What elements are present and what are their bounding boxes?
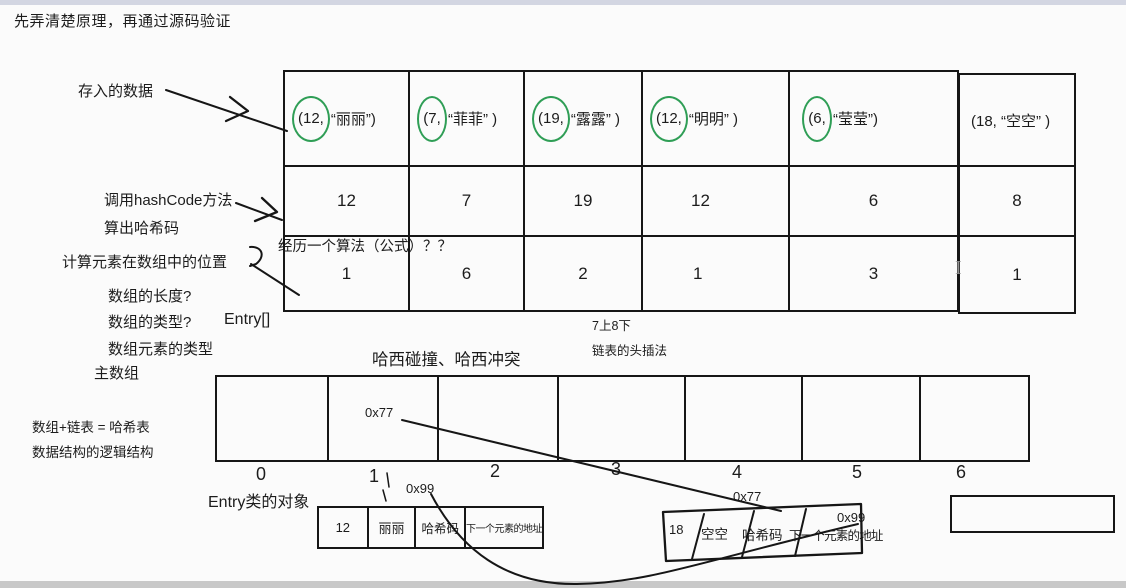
green-circle-key: (12, bbox=[650, 96, 688, 142]
green-circle-key: (6, bbox=[802, 96, 832, 142]
label-array-length: 数组的长度? bbox=[108, 289, 191, 306]
hashcode-value: 19 bbox=[574, 191, 593, 211]
label-call-hashcode: 调用hashCode方法 bbox=[104, 193, 232, 210]
label-entry-array-type: Entry[] bbox=[224, 311, 270, 329]
array-index-2: 2 bbox=[490, 461, 500, 482]
hashcode-cell: 7 bbox=[408, 165, 525, 237]
page-title: 先弄清楚原理，再通过源码验证 bbox=[14, 10, 231, 31]
label-element-type: 数组元素的类型 bbox=[108, 342, 213, 359]
whiteboard-canvas[interactable]: 先弄清楚原理，再通过源码验证 存入的数据 调用hashCode方法 算出哈希码 … bbox=[0, 0, 1126, 588]
window-top-bar bbox=[0, 0, 1126, 5]
hashcode-value: 8 bbox=[1012, 191, 1021, 211]
text-cursor: I bbox=[955, 257, 962, 280]
label-compute-position: 计算元素在数组中的位置 bbox=[62, 255, 227, 272]
slot-value: 3 bbox=[869, 264, 878, 284]
slot-value: 6 bbox=[462, 264, 471, 284]
array-divider bbox=[437, 377, 439, 460]
pair-cell-kongkong: (18, “空空” ) bbox=[958, 73, 1076, 167]
stray-tick bbox=[383, 490, 386, 501]
stray-tick bbox=[387, 473, 389, 487]
hashcode-cell: 12 bbox=[641, 165, 790, 237]
hashcode-cell: 19 bbox=[523, 165, 643, 237]
empty-box bbox=[950, 495, 1115, 533]
array-divider bbox=[327, 377, 329, 460]
slot-cell: 1 bbox=[958, 235, 1076, 314]
hashcode-cell: 8 bbox=[958, 165, 1076, 237]
pair-full: (18, “空空” ) bbox=[971, 110, 1050, 131]
array-index-5: 5 bbox=[852, 462, 862, 483]
arrowhead-call-hashcode bbox=[255, 198, 277, 221]
slot-value: 1 bbox=[693, 264, 702, 284]
array-divider bbox=[557, 377, 559, 460]
array-index-1: 1 bbox=[369, 466, 379, 487]
array-divider bbox=[919, 377, 921, 460]
hashcode-cell: 6 bbox=[788, 165, 959, 237]
label-head-insertion: 链表的头插法 bbox=[592, 345, 667, 359]
label-main-array: 主数组 bbox=[94, 366, 139, 383]
entry2-hashcode-field: 哈希码 bbox=[742, 524, 783, 544]
entry1-box: 12 丽丽 哈希码 下一个元素的地址 bbox=[317, 506, 544, 549]
pair-cell-yingying: (6,“莹莹”) bbox=[788, 70, 959, 167]
pair-cell-feifei: (7,“菲菲” ) bbox=[408, 70, 525, 167]
array-divider bbox=[684, 377, 686, 460]
pair-rest: “明明” ) bbox=[689, 108, 738, 129]
arrow-hook-position bbox=[250, 247, 262, 266]
slot-cell: 2 bbox=[523, 235, 643, 312]
green-circle-key: (19, bbox=[532, 96, 570, 142]
label-compute-hash: 算出哈希码 bbox=[104, 221, 179, 238]
label-array-type: 数组的类型? bbox=[108, 315, 191, 332]
entry1-next-field: 下一个元素的地址 bbox=[466, 508, 542, 547]
slot-cell: 3 bbox=[788, 235, 959, 312]
slot-cell: 1 bbox=[641, 235, 790, 312]
pair-rest: “莹莹”) bbox=[833, 108, 878, 129]
slot-value: 2 bbox=[578, 264, 587, 284]
arrowhead-stored-data bbox=[226, 97, 248, 121]
hashcode-value: 12 bbox=[337, 191, 356, 211]
hashcode-value: 6 bbox=[869, 191, 878, 211]
label-seven-up-eight-down: 7上8下 bbox=[592, 320, 631, 334]
array-slot1-pointer: 0x77 bbox=[365, 405, 393, 420]
entry1-hashcode-field: 哈希码 bbox=[416, 508, 466, 547]
entry2-next-field: 下一个元素的地址 bbox=[789, 525, 883, 544]
slot-value: 1 bbox=[342, 264, 351, 284]
array-index-6: 6 bbox=[956, 462, 966, 483]
label-stored-data: 存入的数据 bbox=[78, 84, 153, 101]
array-divider bbox=[801, 377, 803, 460]
window-bottom-bar bbox=[0, 581, 1126, 588]
green-circle-key: (7, bbox=[417, 96, 447, 142]
green-circle-key: (12, bbox=[292, 96, 330, 142]
array-index-0: 0 bbox=[256, 464, 266, 485]
slot-value: 1 bbox=[1012, 265, 1021, 285]
pair-rest: “丽丽”) bbox=[331, 108, 376, 129]
array-index-3: 3 bbox=[611, 459, 621, 480]
pair-cell-lili: (12,“丽丽”) bbox=[283, 70, 410, 167]
hashcode-cell: 12 bbox=[283, 165, 410, 237]
entry2-key: 18 bbox=[669, 522, 683, 537]
entry2-value: 空空 bbox=[701, 523, 728, 543]
pair-rest: “露露” ) bbox=[571, 108, 620, 129]
hashcode-value: 7 bbox=[462, 191, 471, 211]
arrow-stored-data bbox=[166, 90, 287, 131]
entry1-address-label: 0x99 bbox=[406, 481, 434, 496]
label-array-plus-list: 数组+链表 = 哈希表 bbox=[32, 421, 150, 436]
array-index-4: 4 bbox=[732, 462, 742, 483]
entry1-key: 12 bbox=[319, 508, 369, 547]
entry2-address-label: 0x77 bbox=[733, 489, 761, 504]
label-hash-collision: 哈西碰撞、哈西冲突 bbox=[372, 351, 521, 369]
pair-cell-mingming: (12,“明明” ) bbox=[641, 70, 790, 167]
main-array-box bbox=[215, 375, 1030, 462]
label-entry-object: Entry类的对象 bbox=[208, 494, 309, 512]
pair-rest: “菲菲” ) bbox=[448, 108, 497, 129]
hashcode-value: 12 bbox=[691, 191, 710, 211]
slot-cell: 1 bbox=[283, 235, 410, 312]
arrow-call-hashcode bbox=[236, 203, 282, 220]
entry1-value: 丽丽 bbox=[369, 508, 417, 547]
entry2-next-address-label: 0x99 bbox=[837, 510, 865, 525]
pair-cell-lulu: (19,“露露” ) bbox=[523, 70, 643, 167]
label-logical-structure: 数据结构的逻辑结构 bbox=[32, 446, 154, 461]
slot-cell: 6 bbox=[408, 235, 525, 312]
